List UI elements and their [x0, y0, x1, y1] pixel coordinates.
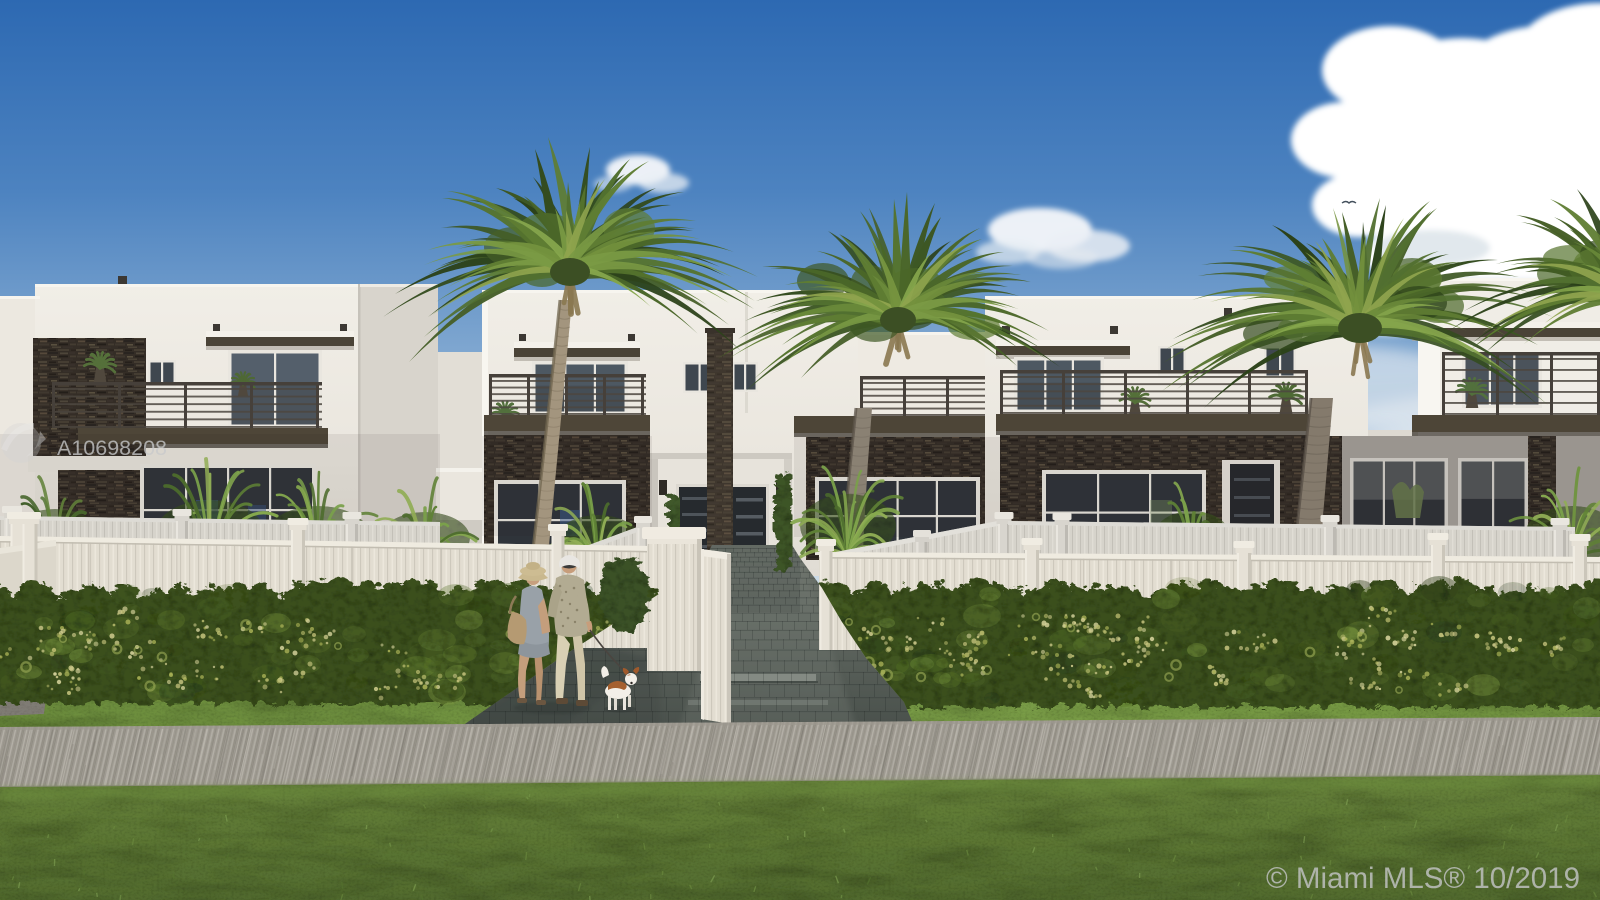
svg-text:© Miami MLS® 10/2019: © Miami MLS® 10/2019	[1266, 862, 1580, 895]
svg-text:A10698208: A10698208	[57, 436, 167, 460]
